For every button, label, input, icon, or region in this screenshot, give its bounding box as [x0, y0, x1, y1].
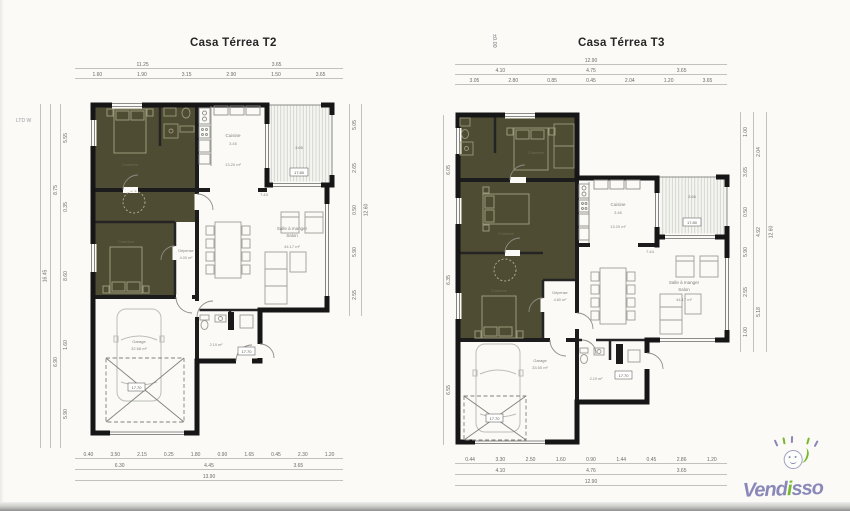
- terrace-level-tag: 17.80: [294, 170, 305, 175]
- dim-col-t2-left2: 8.756.90: [50, 104, 60, 448]
- leaf-icon: [797, 447, 811, 464]
- dimension-label: 2.04: [756, 147, 762, 157]
- dimension-label: 2.04: [624, 78, 636, 84]
- dimension-label: 5.18: [756, 307, 762, 317]
- room-label-chambre1: Chambre: [528, 150, 545, 155]
- ray-icon: [806, 437, 810, 444]
- room-label-salon1: Salle à manger: [277, 226, 308, 231]
- dim-row-t3-top3: 3.052.800.850.452.041.203.65: [455, 76, 727, 85]
- floor-plan-t2: 3.65 17.80: [68, 96, 368, 461]
- dimension-label: 3.65: [676, 468, 688, 474]
- living-dim: 7.43: [260, 192, 269, 197]
- ray-icon: [782, 437, 785, 444]
- wc-area: 2.19 m²: [590, 377, 604, 381]
- sofa-icon: [660, 256, 718, 334]
- dimension-label: 4.10: [494, 468, 506, 474]
- dining-table-icon: [206, 222, 250, 278]
- bedroom-wing-overlay: [458, 115, 577, 340]
- dimension-label: 16.45: [43, 270, 49, 283]
- dimension-label: 8.75: [53, 185, 59, 195]
- dimension-label: 1.20: [663, 78, 675, 84]
- dim-row-t2-bottom3: 13.90: [75, 472, 343, 481]
- room-label-salon2: Salon: [678, 287, 690, 292]
- dimension-label: 6.30: [114, 463, 126, 469]
- dim-row-t3-top2: 4.104.753.65: [455, 66, 727, 75]
- dimension-label: 2.80: [507, 78, 519, 84]
- corner-marker-t2: LTD W: [16, 118, 31, 124]
- cuisine-area: 13.20 m²: [225, 162, 241, 167]
- garage-level-tag: 17.70: [131, 385, 142, 390]
- dimension-label: 3.05: [469, 78, 481, 84]
- scanned-floorplan-sheet: Casa Térrea T2 LTD W 11.253.65 1.601.903…: [0, 0, 850, 511]
- living-dim: 7.44: [646, 249, 655, 254]
- wc-level-tag: 17.70: [618, 373, 629, 378]
- room-label-chambre1: Chambre: [122, 162, 139, 167]
- dim-row-t3-top1: 12.90: [455, 56, 727, 65]
- logo-doodle-icon: [767, 436, 824, 474]
- room-label-chambre2: Chambre: [498, 231, 515, 236]
- dimension-label: 12.90: [584, 479, 599, 485]
- floor-plan-t3: 3.65 17.80: [450, 98, 750, 468]
- dimension-label: 0.45: [585, 78, 597, 84]
- dim-col-t3-right3: 12.60: [766, 112, 776, 352]
- dimension-label: 12.90: [584, 58, 599, 64]
- dim-row-t2-top2: 1.601.903.152.901.503.65: [75, 70, 343, 79]
- scan-shadow-bottom: [0, 502, 850, 511]
- cuisine-dim: 3.46: [614, 210, 623, 215]
- dimension-label: 3.15: [181, 72, 193, 78]
- terrace-dim-label: 3.65: [295, 145, 304, 150]
- dim-col-t3-right2: 2.044.925.18: [753, 112, 763, 352]
- terrace-dim-label: 3.65: [688, 194, 697, 199]
- dimension-label: 4.10: [494, 68, 506, 74]
- room-label-depense: Dépense: [552, 291, 567, 295]
- toilet-icon: [200, 315, 253, 330]
- salon-area: 44.17 m²: [284, 244, 300, 249]
- plan-title-t3: Casa Térrea T3: [578, 37, 665, 49]
- dim-row-t2-top1: 11.253.65: [75, 60, 343, 69]
- dimension-label: 1.90: [136, 72, 148, 78]
- dimension-label: 11.25: [136, 62, 150, 68]
- room-label-cuisine: Cuisine: [610, 202, 626, 207]
- room-label-cuisine: Cuisine: [225, 133, 241, 138]
- terrace-level-tag: 17.80: [687, 220, 698, 225]
- dimension-label: 2.90: [225, 72, 237, 78]
- garage-area: 33.50 m²: [532, 365, 548, 370]
- dim-row-t2-bottom2: 6.304.453.65: [75, 461, 343, 470]
- dimension-label: 3.65: [702, 78, 714, 84]
- dimension-label: 13.90: [202, 474, 217, 480]
- dimension-label: 3.65: [292, 463, 304, 469]
- scan-edge-left: [0, 0, 4, 511]
- dim-row-t3-bottom3: 12.90: [455, 477, 727, 486]
- dimension-label: 6.90: [53, 357, 59, 367]
- dimension-label: 4.92: [756, 227, 762, 237]
- terrace-t2: 3.65 17.80: [267, 105, 332, 185]
- logo-text: Vendisso: [742, 477, 823, 503]
- bedroom-wing-overlay: [93, 105, 197, 297]
- logo-part3: sso: [791, 477, 823, 500]
- garage-area: 32.68 m²: [131, 346, 147, 351]
- plan-title-t2: Casa Térrea T2: [190, 37, 277, 49]
- dimension-label: 12.60: [769, 226, 775, 239]
- logo-part1: Vend: [742, 478, 787, 502]
- dimension-label: 1.60: [91, 72, 103, 78]
- dim-col-t2-left3: 16.45: [40, 104, 50, 448]
- room-label-salon1: Salle à manger: [669, 280, 700, 285]
- dimension-label: 3.65: [271, 62, 283, 68]
- room-label-salon2: Salon: [286, 233, 298, 238]
- ray-icon: [791, 436, 793, 443]
- cuisine-dim: 3.45: [229, 141, 238, 146]
- room-label-chambre2: Chambre: [118, 239, 135, 244]
- depense-area: 4.80 m²: [554, 298, 568, 302]
- dimension-label: 4.76: [585, 468, 597, 474]
- room-label-chambre3: Chambre: [491, 288, 508, 293]
- dimension-label: 4.45: [203, 463, 215, 469]
- cuisine-area: 13.20 m²: [610, 224, 626, 229]
- room-label-garage: Garage: [132, 339, 146, 344]
- wc-level-tag: 17.70: [241, 349, 252, 354]
- room-label-depense: Dépense: [178, 249, 193, 253]
- wc-area: 2.19 m²: [210, 343, 224, 347]
- room-label-garage: Garage: [533, 358, 547, 363]
- dimension-label: 1.50: [270, 72, 282, 78]
- vendisso-logo: Vendisso: [741, 435, 847, 503]
- salon-area: 44.17 m²: [676, 297, 692, 302]
- dimension-label: 3.65: [315, 72, 327, 78]
- ray-icon: [814, 440, 819, 447]
- dining-table-icon: [591, 268, 635, 324]
- dimension-label: 0.85: [546, 78, 558, 84]
- ray-icon: [774, 440, 779, 447]
- garage-level-tag: 17.70: [489, 416, 500, 421]
- depense-area: 4.00 m²: [180, 256, 194, 260]
- dimension-label: 3.65: [676, 68, 688, 74]
- dimension-label: 4.75: [585, 68, 597, 74]
- level-marker-t3: ±0.00: [491, 34, 497, 48]
- terrace-t3: 3.65 17.80: [657, 177, 727, 237]
- kitchen-icons: [579, 180, 640, 243]
